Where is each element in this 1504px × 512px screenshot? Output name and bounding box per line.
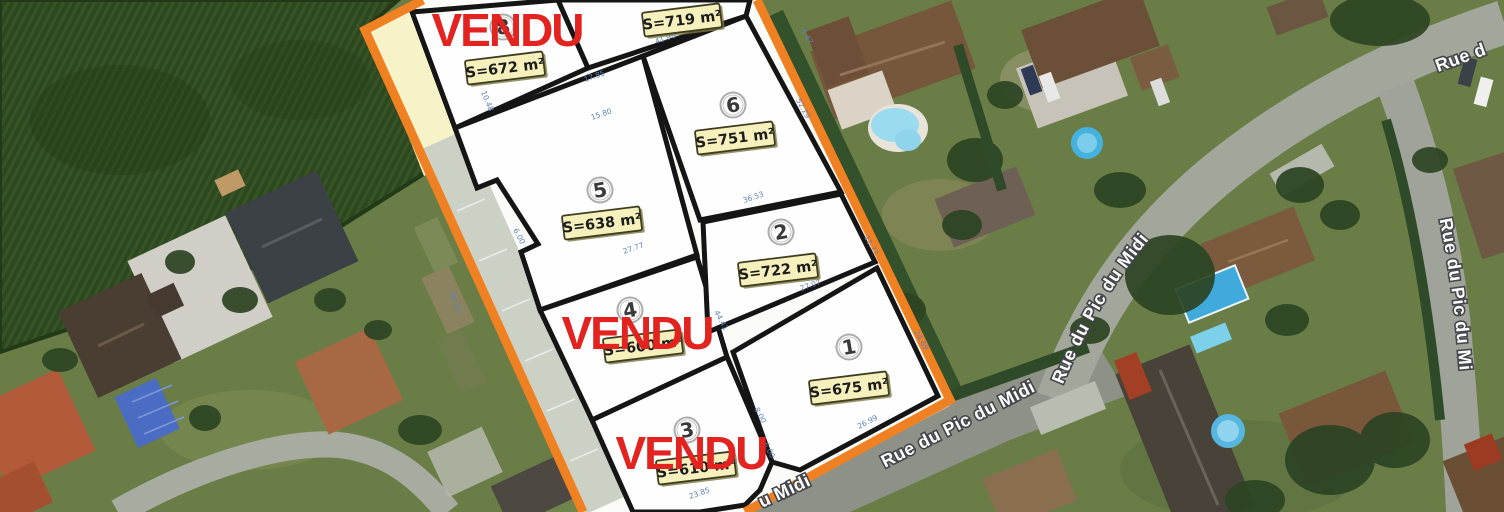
pool-round-top bbox=[1071, 127, 1103, 159]
sold-stamp-lot-8: VENDU bbox=[431, 4, 582, 56]
aerial-map: ♿ 10.48 41.98 17.85 52.29 bbox=[0, 0, 1504, 512]
pool-round-bottom bbox=[1211, 414, 1245, 448]
pool-kidney bbox=[868, 104, 928, 152]
sold-stamp-lot-4: VENDU bbox=[561, 307, 712, 359]
sold-stamp-lot-3: VENDU bbox=[615, 427, 766, 479]
satellite-lot-map: ♿ 10.48 41.98 17.85 52.29 bbox=[0, 0, 1504, 512]
